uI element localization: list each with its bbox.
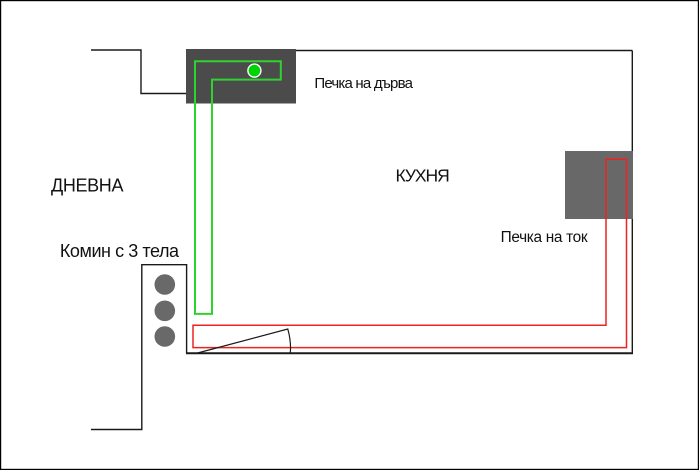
svg-text:КУХНЯ: КУХНЯ xyxy=(396,165,450,185)
svg-text:ДНЕВНА: ДНЕВНА xyxy=(51,176,123,196)
svg-text:Комин с 3 тела: Комин с 3 тела xyxy=(60,241,180,261)
svg-text:Печка на дърва: Печка на дърва xyxy=(314,75,413,92)
svg-text:Печка на ток: Печка на ток xyxy=(501,229,588,246)
